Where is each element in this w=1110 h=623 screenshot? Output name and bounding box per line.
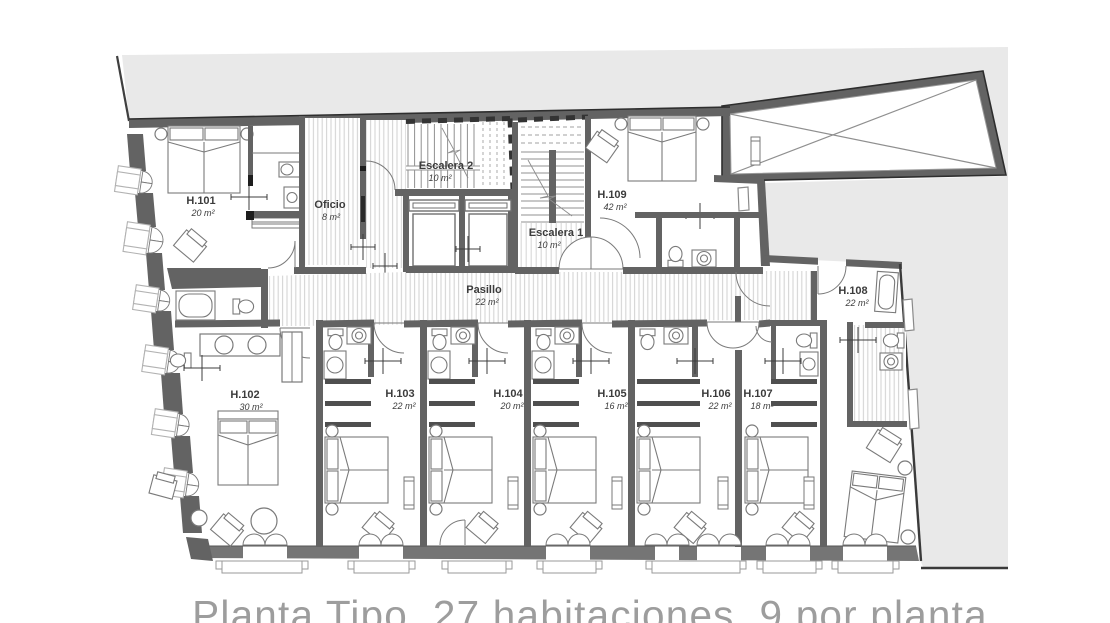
svg-text:H.101: H.101 [186,195,215,207]
svg-text:18 m²: 18 m² [750,401,774,411]
svg-text:Pasillo: Pasillo [466,284,502,296]
svg-text:Escalera 1: Escalera 1 [529,227,583,239]
svg-text:H.109: H.109 [597,189,626,201]
svg-text:H.104: H.104 [493,388,523,400]
svg-text:Oficio: Oficio [314,199,345,211]
svg-text:42 m²: 42 m² [603,202,627,212]
svg-text:16 m²: 16 m² [604,401,628,411]
svg-text:20 m²: 20 m² [190,208,215,218]
svg-text:22 m²: 22 m² [844,298,869,308]
svg-text:10 m²: 10 m² [537,240,561,250]
svg-text:Planta Tipo, 27 habitaciones,: Planta Tipo, 27 habitaciones, 9 por plan… [192,592,988,623]
svg-text:H.106: H.106 [701,388,730,400]
svg-text:H.105: H.105 [597,388,626,400]
svg-text:H.108: H.108 [838,285,867,297]
svg-text:22 m²: 22 m² [391,401,416,411]
svg-text:20 m²: 20 m² [499,401,524,411]
svg-text:H.102: H.102 [230,389,259,401]
svg-text:10 m²: 10 m² [428,173,452,183]
svg-text:8 m²: 8 m² [322,212,341,222]
svg-text:H.103: H.103 [385,388,414,400]
svg-text:22 m²: 22 m² [707,401,732,411]
svg-text:Escalera 2: Escalera 2 [419,160,473,172]
svg-text:H.107: H.107 [743,388,772,400]
svg-text:22 m²: 22 m² [474,297,499,307]
